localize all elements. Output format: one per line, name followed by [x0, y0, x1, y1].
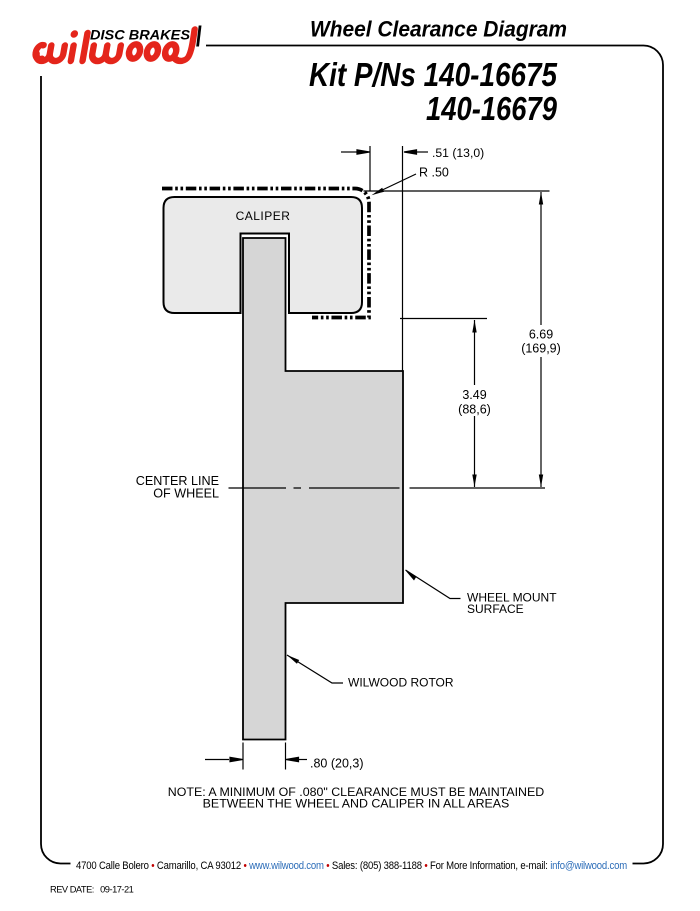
svg-text:140-16679: 140-16679	[426, 90, 558, 127]
svg-text:3.49: 3.49	[462, 388, 486, 402]
svg-text:R .50: R .50	[419, 166, 449, 180]
svg-text:Kit P/Ns 140-16675: Kit P/Ns 140-16675	[309, 56, 558, 93]
svg-text:WILWOOD ROTOR: WILWOOD ROTOR	[348, 676, 454, 690]
svg-text:(169,9): (169,9)	[521, 342, 561, 356]
svg-text:CALIPER: CALIPER	[236, 209, 291, 223]
svg-text:.51 (13,0): .51 (13,0)	[432, 146, 484, 160]
svg-text:.80 (20,3): .80 (20,3)	[310, 756, 364, 770]
svg-text:OF WHEEL: OF WHEEL	[153, 487, 219, 501]
svg-text:BETWEEN THE WHEEL AND CALIPER: BETWEEN THE WHEEL AND CALIPER IN ALL ARE…	[203, 797, 510, 811]
svg-text:SURFACE: SURFACE	[467, 602, 524, 616]
svg-text:DISC BRAKES: DISC BRAKES	[90, 28, 190, 43]
svg-text:(88,6): (88,6)	[458, 403, 491, 417]
svg-text:Wheel Clearance Diagram: Wheel Clearance Diagram	[310, 17, 567, 42]
svg-text:REV DATE: 09-17-21: REV DATE: 09-17-21	[50, 885, 134, 895]
svg-text:6.69: 6.69	[529, 328, 553, 342]
svg-text:4700 Calle Bolero • Camarillo,: 4700 Calle Bolero • Camarillo, CA 93012 …	[76, 860, 627, 872]
